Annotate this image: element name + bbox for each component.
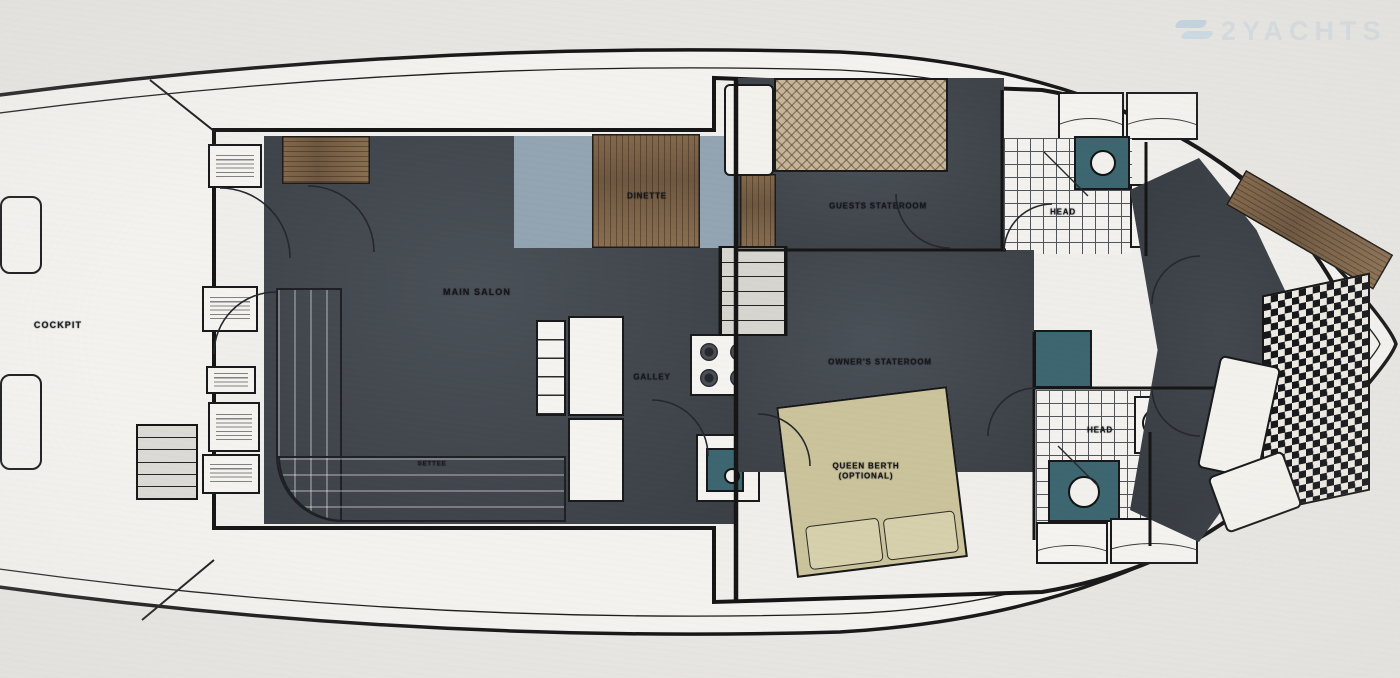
interior-walls <box>720 90 1214 546</box>
guest-stateroom-label: GUESTS STATEROOM <box>829 202 927 211</box>
salon-label: MAIN SALON <box>443 287 511 297</box>
door-swing-arc <box>988 388 1036 436</box>
owners-stateroom-label: OWNER'S STATEROOM <box>828 358 932 367</box>
door-swing-arc <box>308 186 374 252</box>
head-aft-label: HEAD <box>1087 426 1113 435</box>
yacht-floor-plan: COCKPIT MAIN SALON DINETTE GALLEY SETTEE… <box>0 0 1400 678</box>
door-swing-arc <box>1004 204 1052 252</box>
watermark-text: 2YACHTS <box>1221 16 1387 47</box>
shower-lines <box>1044 152 1098 486</box>
door-swing-arc <box>1152 256 1200 304</box>
door-swing-arc <box>220 188 290 258</box>
queen-berth-label: QUEEN BERTH (OPTIONAL) <box>832 462 899 483</box>
door-swing-arc <box>1152 388 1200 436</box>
walls-and-doors-overlay <box>0 0 1400 678</box>
settee-label: SETTEE <box>418 461 447 468</box>
cockpit-label: COCKPIT <box>34 320 82 330</box>
door-swing-arc <box>652 400 708 456</box>
queen-berth-label-line2: (OPTIONAL) <box>832 472 899 482</box>
door-swing-arc <box>214 292 276 354</box>
2yachts-logo-icon <box>1176 20 1212 44</box>
queen-berth-label-line1: QUEEN BERTH <box>832 462 899 472</box>
dinette-label: DINETTE <box>627 192 667 201</box>
door-swing-arc <box>758 414 810 466</box>
head-forward-label: HEAD <box>1050 208 1076 217</box>
galley-label: GALLEY <box>633 373 670 382</box>
watermark: 2YACHTS <box>1176 16 1387 47</box>
